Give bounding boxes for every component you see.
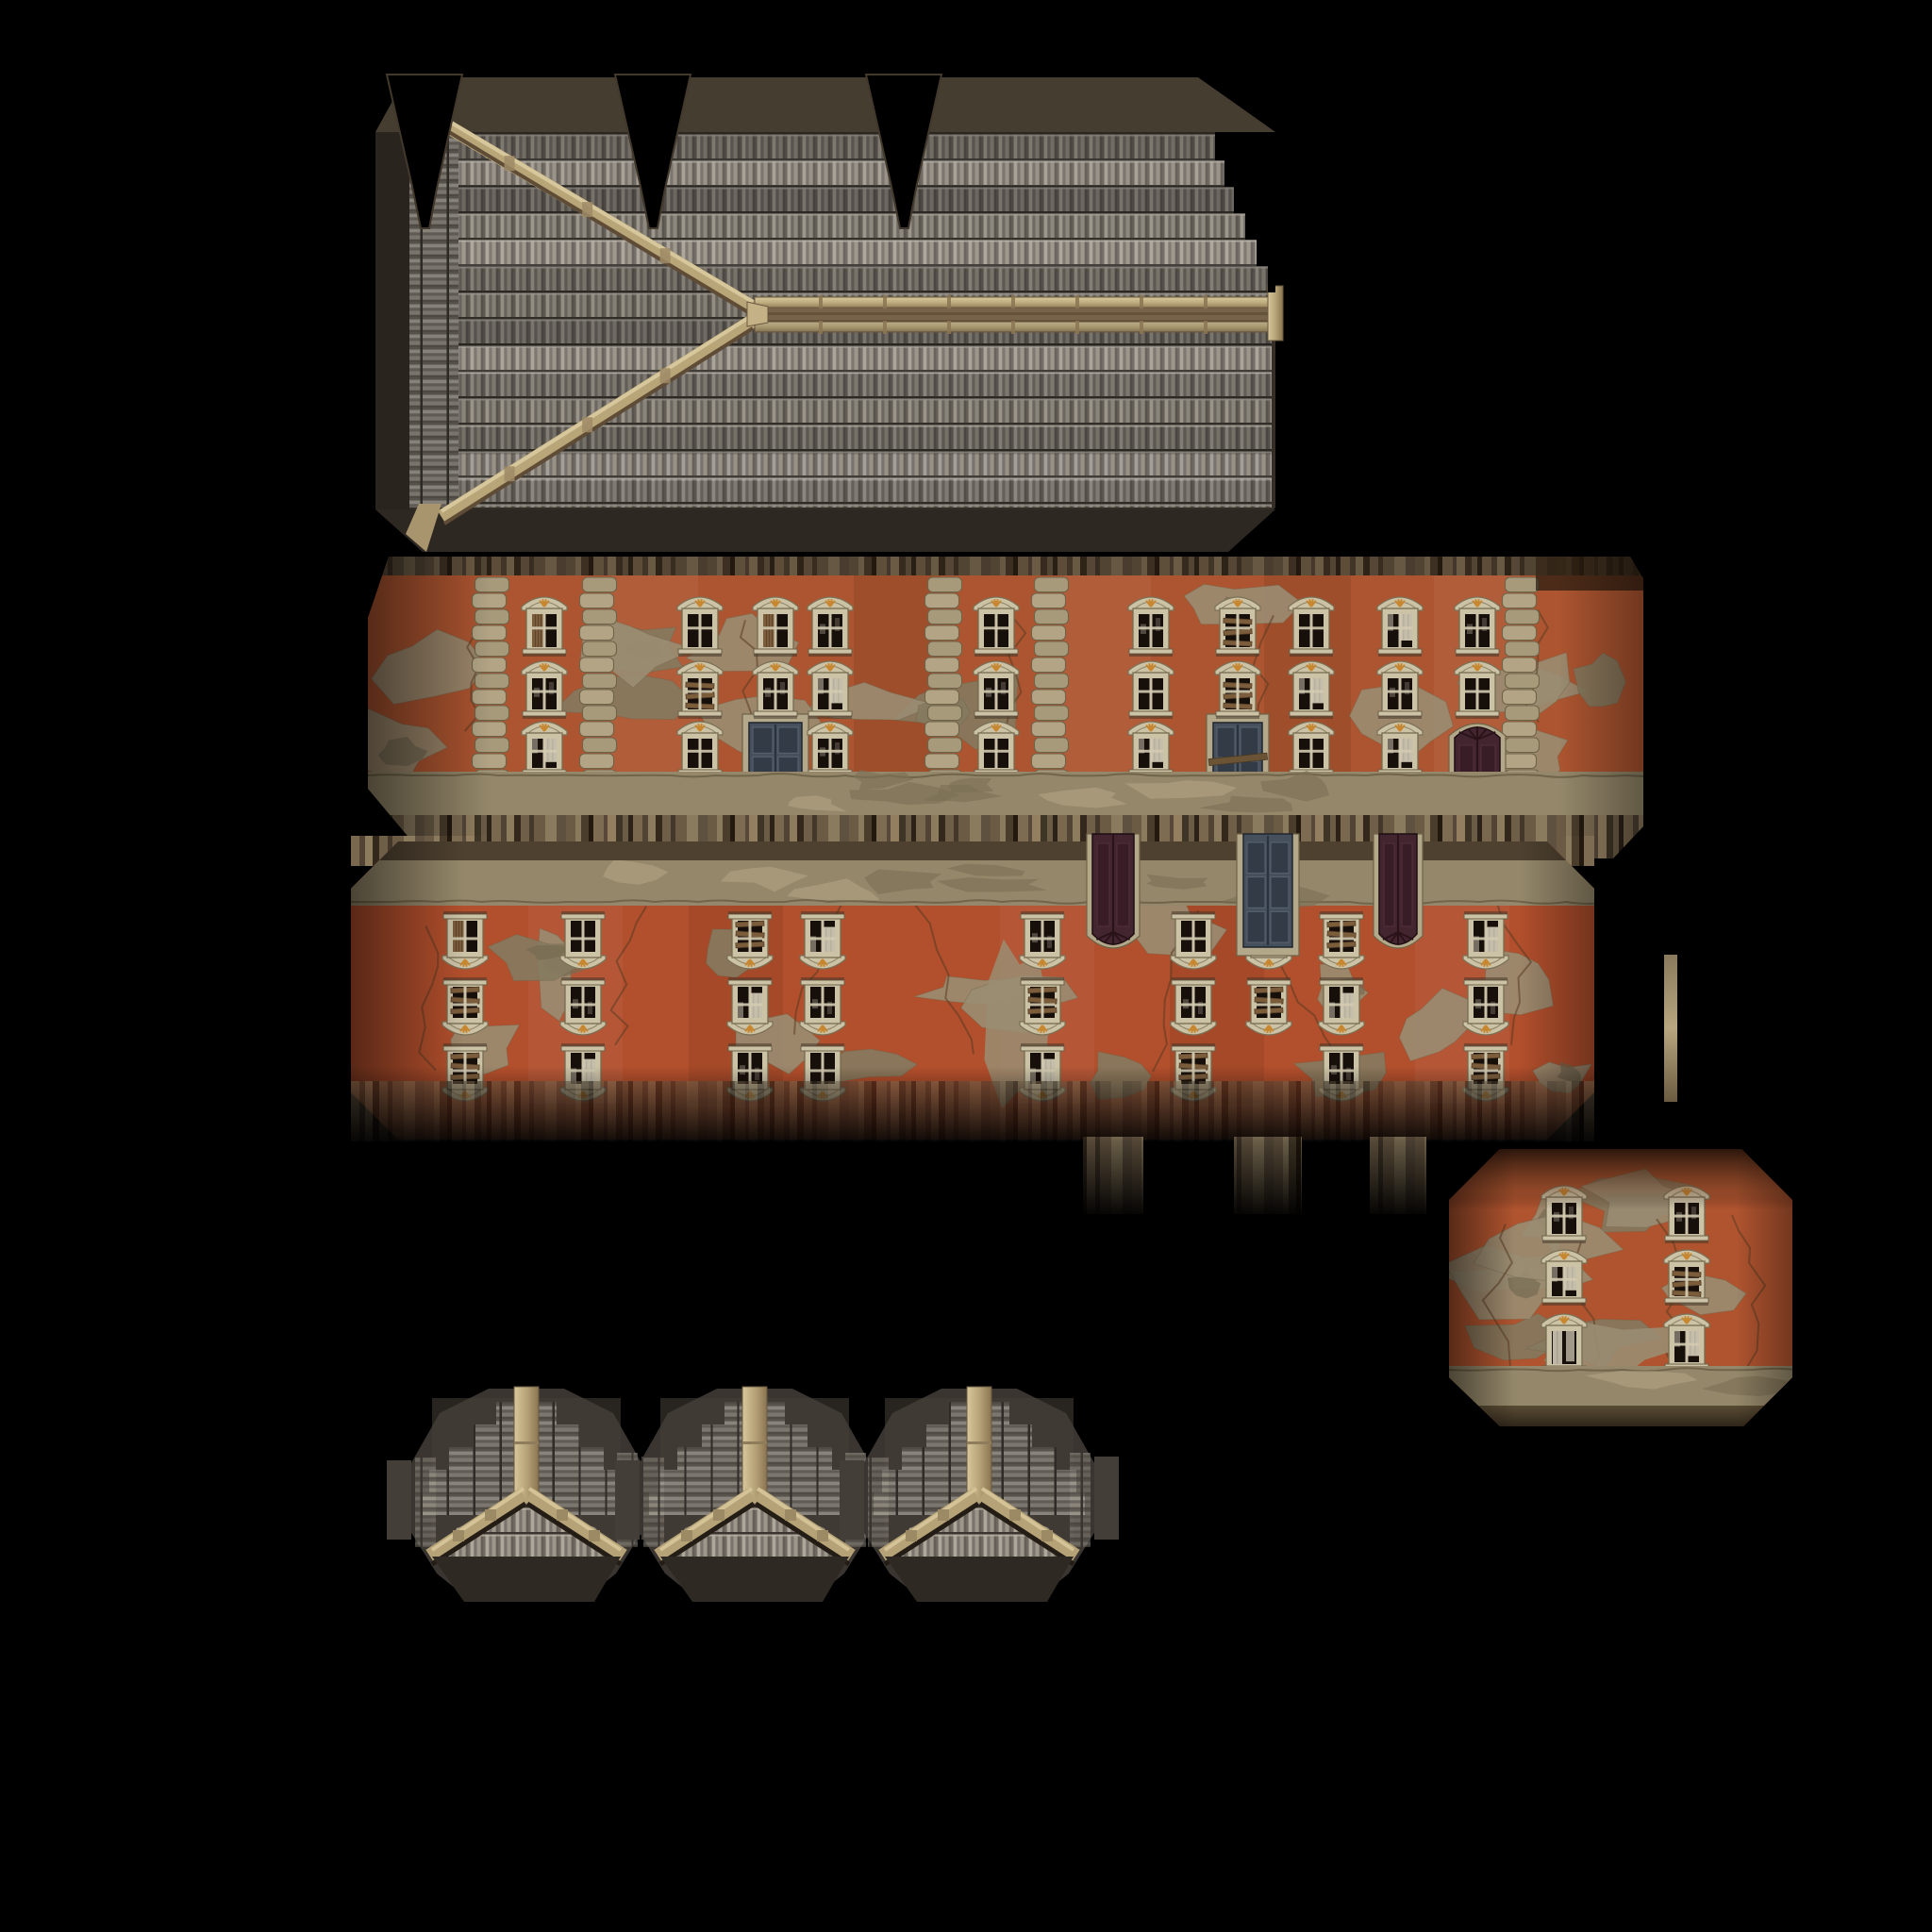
window-dark: [560, 911, 606, 969]
roof-top-hipped-tile-sheet: [375, 75, 1283, 552]
window-curtain: [1319, 977, 1364, 1035]
window-boards: [1319, 911, 1364, 969]
window-curtain: [1664, 1314, 1709, 1372]
window-open: [808, 722, 853, 777]
window-curtain: [1128, 722, 1174, 777]
window-dark: [974, 722, 1019, 777]
window-open: [1463, 977, 1508, 1035]
facade-surface: [340, 555, 1670, 860]
window-open: [1455, 597, 1500, 657]
texture-atlas-sheet: [0, 0, 1932, 1932]
window-dark: [1171, 911, 1216, 969]
window-open: [1020, 911, 1065, 969]
window-open: [522, 661, 567, 719]
window-dark: [1128, 661, 1174, 719]
door-arched: [1087, 834, 1140, 948]
window-door-curtain: [1541, 1314, 1587, 1374]
window-open: [800, 977, 845, 1035]
facade-strip-upper: [340, 555, 1670, 860]
patch-surface: [1438, 1149, 1804, 1428]
window-dark: [677, 597, 723, 657]
window-open: [1171, 977, 1216, 1035]
window-curtain: [1541, 1250, 1587, 1306]
window-shutter: [753, 597, 798, 657]
window-open: [808, 597, 853, 657]
window-curtain: [727, 977, 773, 1035]
cracked-wall-patch: [1438, 1149, 1804, 1428]
window-curtain: [1463, 911, 1508, 969]
window-dark: [1289, 722, 1334, 777]
window-boards: [1664, 1250, 1709, 1306]
window-boards: [1215, 661, 1260, 719]
door-paneled: [1237, 834, 1299, 956]
window-curtain: [522, 722, 567, 777]
window-dark: [1455, 661, 1500, 719]
window-open: [560, 977, 606, 1035]
window-dark: [1289, 597, 1334, 657]
window-boards: [727, 911, 773, 969]
door-arched: [1374, 834, 1423, 948]
window-boards: [1020, 977, 1065, 1035]
window-shutter: [522, 597, 567, 657]
window-open: [974, 661, 1019, 719]
atlas-svg: [0, 0, 1932, 1932]
window-boards: [1246, 977, 1291, 1035]
ground-stone-band: [368, 770, 1670, 817]
window-dark: [677, 722, 723, 777]
window-boards: [1215, 597, 1260, 657]
window-curtain: [1377, 722, 1423, 777]
window-boards: [677, 661, 723, 719]
window-open: [1377, 661, 1423, 719]
window-curtain: [1377, 597, 1423, 657]
window-dark: [974, 597, 1019, 657]
window-curtain: [1289, 661, 1334, 719]
window-open: [1128, 597, 1174, 657]
wall-edge-trim-sliver: [1664, 955, 1677, 1102]
window-curtain: [808, 661, 853, 719]
window-open: [753, 661, 798, 719]
window-curtain: [800, 911, 845, 969]
